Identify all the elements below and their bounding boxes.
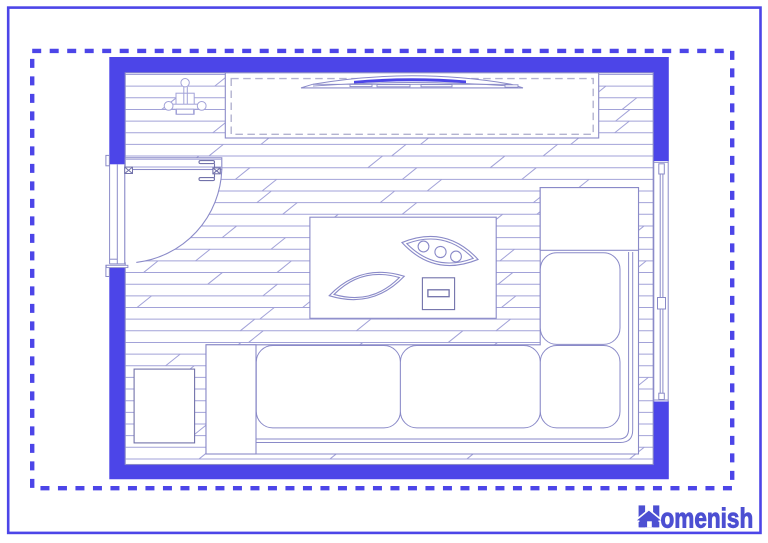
svg-text:omenish: omenish — [661, 503, 754, 534]
